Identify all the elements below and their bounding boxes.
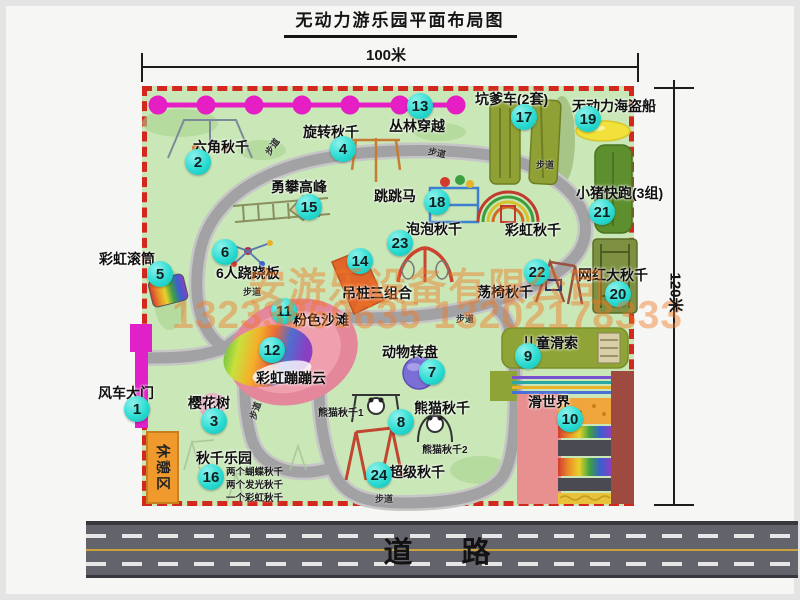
attraction-label-8: 熊猫秋千 [414, 398, 470, 418]
attraction-number-12: 12 [259, 337, 285, 363]
attraction-number-1: 1 [124, 396, 150, 422]
attraction-number-21: 21 [589, 199, 615, 225]
attraction-label-15: 勇攀高峰 [271, 177, 327, 197]
attraction-number-22: 22 [524, 259, 550, 285]
attraction-number-17: 17 [511, 104, 537, 130]
attraction-number-3: 3 [201, 408, 227, 434]
attraction-number-20: 20 [605, 281, 631, 307]
attraction-number-19: 19 [575, 106, 601, 132]
attraction-label-24: 超级秋千 [389, 462, 445, 482]
walkway-label: 步道 [375, 492, 393, 505]
attraction-number-2: 2 [185, 149, 211, 175]
attraction-label-11: 粉色沙滩 [293, 310, 349, 330]
attraction-number-8: 8 [388, 409, 414, 435]
swing-park-note-2: 两个发光秋千 [226, 479, 283, 492]
attraction-number-23: 23 [387, 230, 413, 256]
attraction-number-15: 15 [296, 194, 322, 220]
panda-swing-note-1: 熊猫秋千1 [318, 404, 364, 419]
attraction-number-6: 6 [212, 239, 238, 265]
walkway-label: 步道 [456, 312, 474, 325]
swing-park-note-3: 一个彩虹秋千 [226, 492, 283, 505]
dimension-height-label: 120米 [666, 272, 687, 312]
rest-area-box: 休憩区 [146, 431, 179, 504]
walkway-label: 步道 [536, 158, 554, 171]
rainbow-swing-label: 彩虹秋千 [505, 220, 561, 240]
attraction-number-5: 5 [147, 261, 173, 287]
attraction-label-5: 彩虹滚筒 [99, 249, 155, 269]
panda-swing-note-2: 熊猫秋千2 [422, 441, 468, 456]
title-wrap: 无动力游乐园平面布局图 [0, 6, 800, 38]
attraction-label-12: 彩虹蹦蹦云 [256, 368, 326, 388]
screenshot-stage: 无动力游乐园平面布局图 [0, 0, 800, 600]
attraction-label-13: 丛林穿越 [389, 116, 445, 136]
attraction-number-11: 11 [271, 298, 297, 324]
swing-park-notes: 两个蝴蝶秋千 两个发光秋千 一个彩虹秋千 [226, 466, 283, 505]
walkway-label: 步道 [243, 285, 261, 298]
attraction-label-18: 跳跳马 [374, 186, 416, 206]
attraction-number-13: 13 [407, 93, 433, 119]
attraction-label-21: 小猪快跑(3组) [576, 183, 663, 203]
attraction-number-16: 16 [198, 464, 224, 490]
attraction-number-10: 10 [557, 406, 583, 432]
attraction-number-9: 9 [515, 343, 541, 369]
attraction-number-24: 24 [366, 462, 392, 488]
attraction-number-18: 18 [424, 189, 450, 215]
page-title: 无动力游乐园平面布局图 [284, 6, 517, 38]
attraction-label-6: 6人跷跷板 [216, 263, 280, 283]
attraction-label-17: 坑爹车(2套) [475, 89, 548, 109]
attraction-number-7: 7 [419, 359, 445, 385]
attraction-label-23: 泡泡秋千 [406, 219, 462, 239]
road-label: 道 路 [86, 525, 798, 575]
attraction-number-14: 14 [347, 248, 373, 274]
swing-park-note-1: 两个蝴蝶秋千 [226, 466, 283, 479]
attraction-label-22: 荡椅秋千 [477, 282, 533, 302]
rest-area-label: 休憩区 [153, 444, 173, 492]
dimension-width-label: 100米 [366, 44, 406, 65]
attraction-label-14: 吊桩三组合 [342, 283, 412, 303]
attraction-number-4: 4 [330, 136, 356, 162]
road: 道 路 [86, 521, 798, 578]
